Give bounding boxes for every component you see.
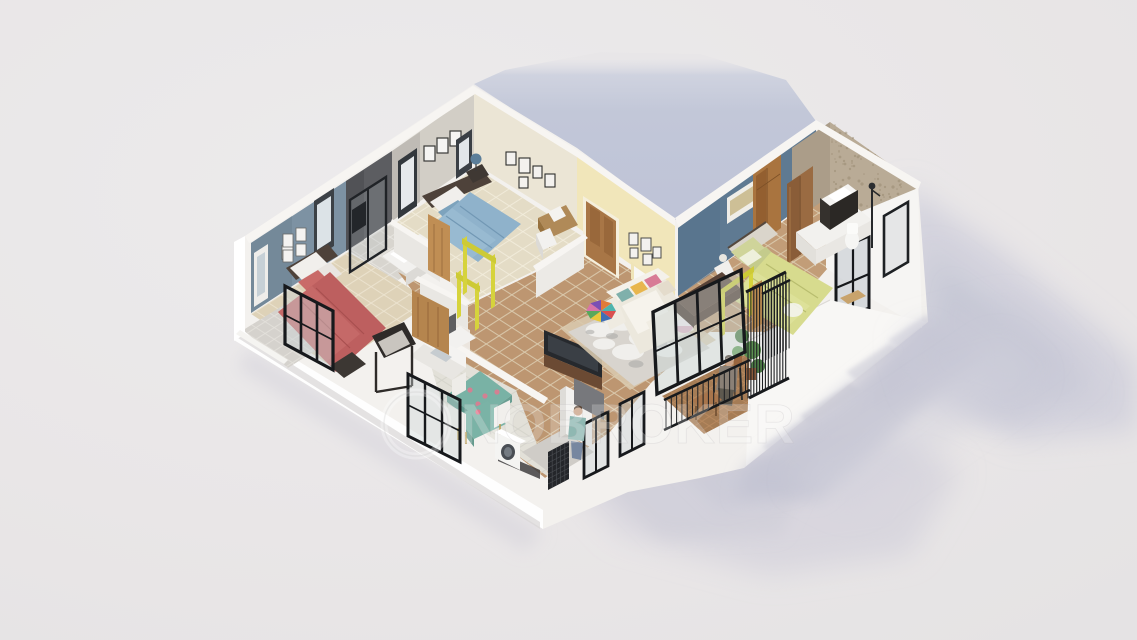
svg-text:NOBROKER: NOBROKER [461, 392, 796, 455]
